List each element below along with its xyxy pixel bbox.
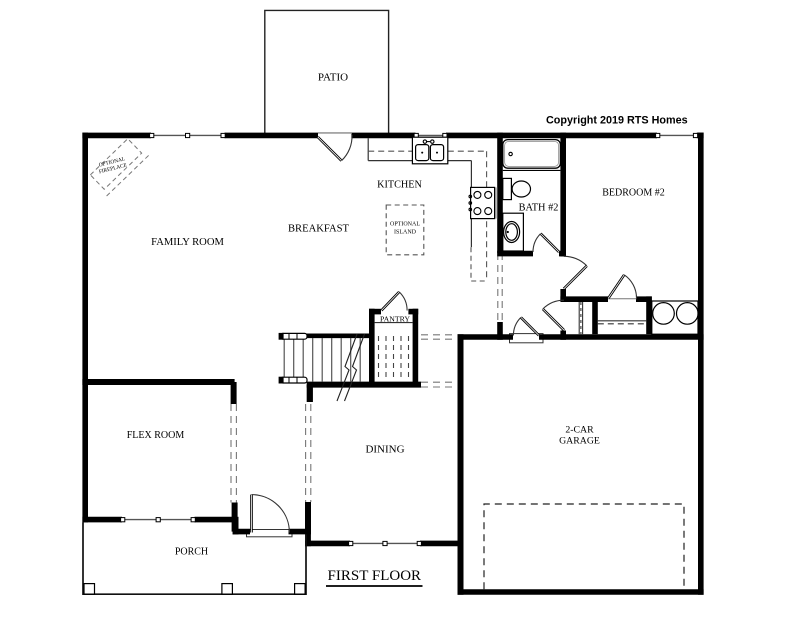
svg-text:OPTIONAL: OPTIONAL — [390, 222, 420, 228]
svg-text:2-CAR: 2-CAR — [565, 424, 594, 435]
svg-text:KITCHEN: KITCHEN — [377, 179, 422, 190]
svg-text:Copyright 2019 RTS Homes: Copyright 2019 RTS Homes — [546, 115, 688, 127]
svg-text:FIRST FLOOR: FIRST FLOOR — [328, 568, 422, 584]
svg-text:PATIO: PATIO — [318, 72, 348, 84]
svg-text:PORCH: PORCH — [175, 546, 208, 557]
svg-text:BEDROOM #2: BEDROOM #2 — [602, 187, 665, 198]
svg-text:PANTRY: PANTRY — [380, 315, 410, 324]
svg-text:BREAKFAST: BREAKFAST — [288, 223, 350, 234]
svg-text:ISLAND: ISLAND — [394, 230, 417, 236]
svg-text:GARAGE: GARAGE — [559, 436, 600, 447]
svg-text:FLEX ROOM: FLEX ROOM — [127, 430, 185, 441]
svg-text:DINING: DINING — [365, 444, 404, 456]
svg-text:FAMILY ROOM: FAMILY ROOM — [151, 237, 224, 248]
svg-text:BATH #2: BATH #2 — [519, 202, 559, 213]
